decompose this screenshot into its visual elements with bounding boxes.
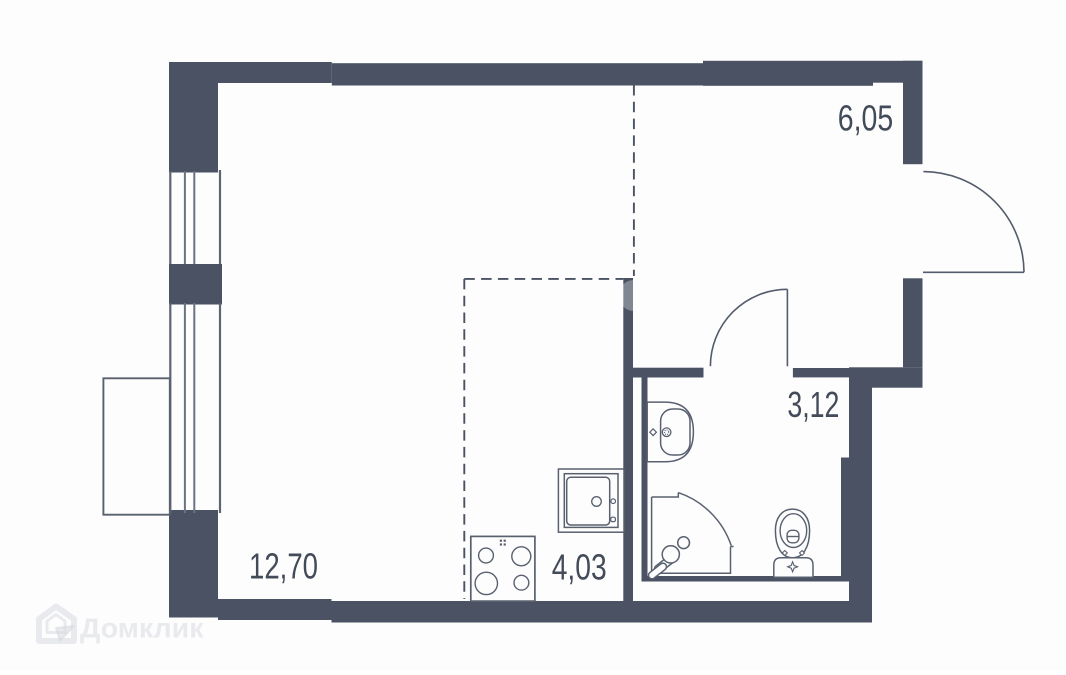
- svg-text:6,05: 6,05: [838, 98, 893, 139]
- svg-text:12,70: 12,70: [249, 545, 318, 586]
- svg-text:3,12: 3,12: [787, 384, 839, 425]
- svg-text:Домклик: Домклик: [80, 613, 205, 644]
- svg-text:4,03: 4,03: [552, 546, 607, 587]
